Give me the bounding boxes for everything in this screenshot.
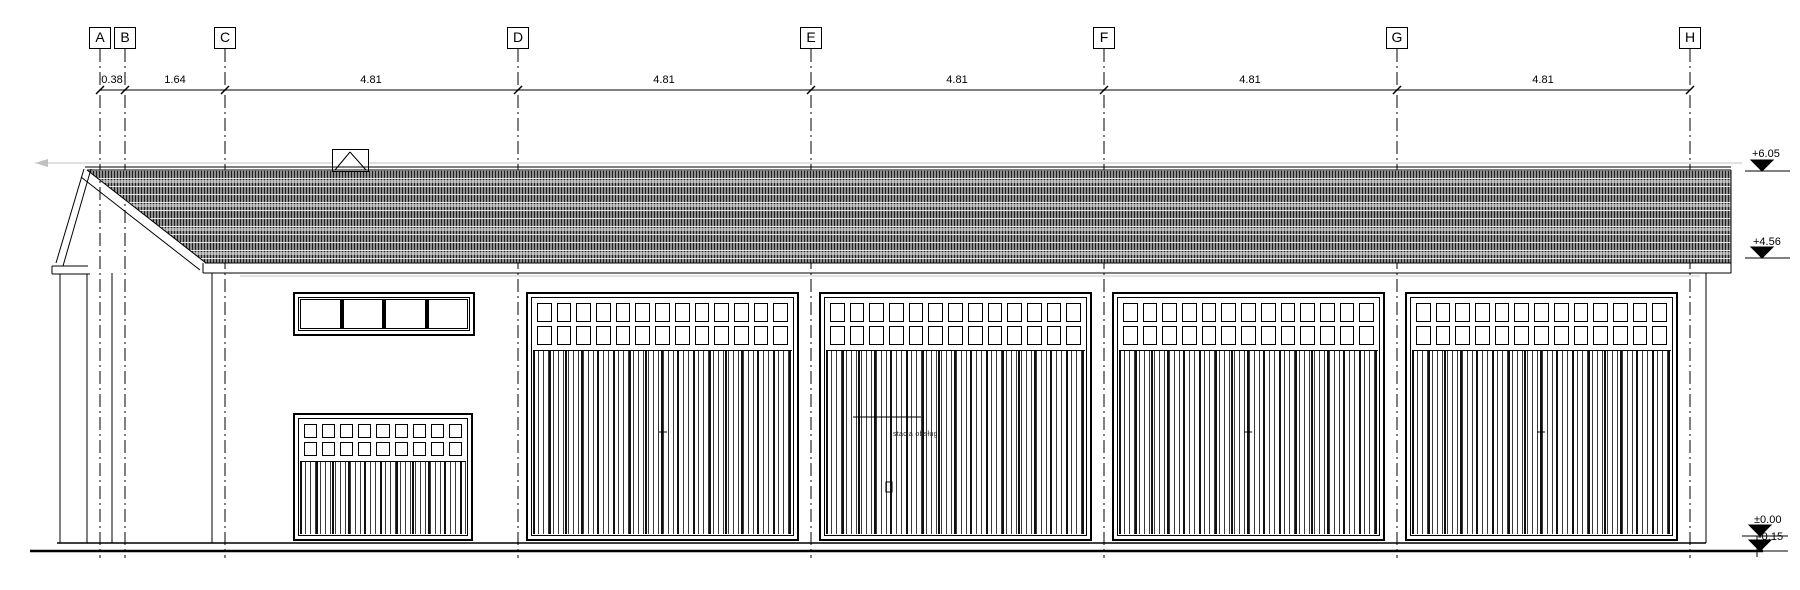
hip-edge (87, 170, 206, 263)
door-handle (886, 482, 892, 492)
level-triangle-icon (1751, 247, 1773, 258)
level-triangle-icon (1749, 525, 1771, 536)
level-markers (1742, 160, 1790, 557)
building-outline (0, 0, 1800, 590)
level-triangle-icon (1749, 540, 1771, 551)
annex-roof-edge (56, 169, 84, 263)
elevation-drawing: A B C D E F G H 0.38 1.64 4.81 4.81 4.81… (0, 0, 1800, 590)
level-triangle-icon (1751, 160, 1773, 171)
